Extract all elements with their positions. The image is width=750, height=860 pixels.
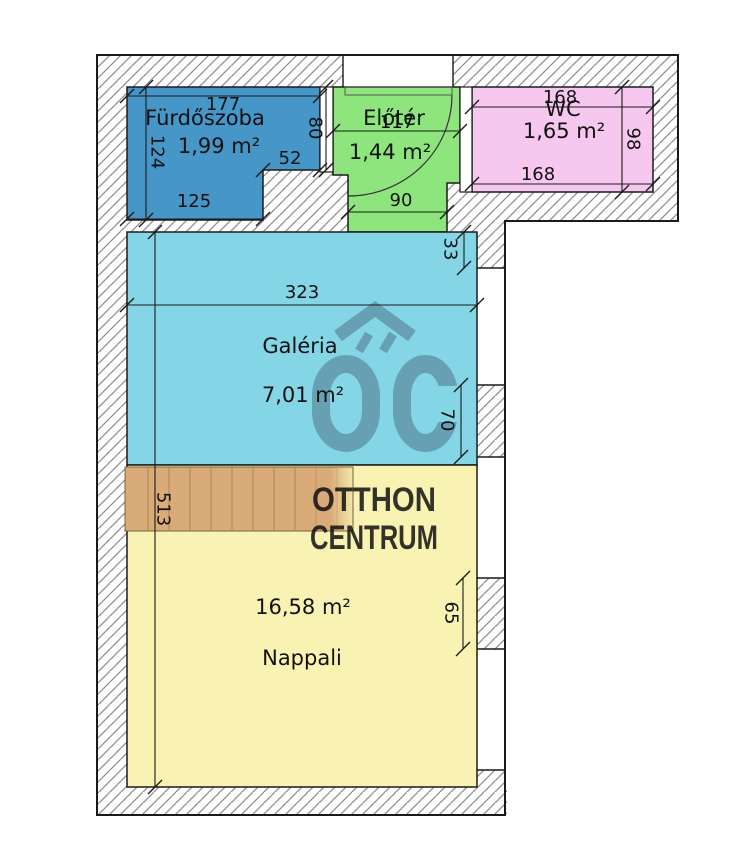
dim-65: 65: [441, 602, 462, 625]
watermark-line2: CENTRUM: [310, 519, 438, 557]
wall-left: [97, 87, 127, 815]
dim-90: 90: [390, 190, 413, 211]
wall-corner-bottom-right: [477, 770, 505, 815]
dim-513: 513: [153, 492, 174, 526]
label-eloter: Előtér: [363, 106, 425, 130]
dim-124: 124: [147, 135, 168, 169]
wall-pier-33: [477, 221, 505, 268]
floorplan-svg: ŐC: [0, 0, 750, 860]
dim-98: 98: [623, 128, 644, 151]
watermark-line1: OTTHON: [312, 481, 436, 519]
wall-top-left: [97, 55, 343, 87]
floorplan-page: ŐC: [0, 0, 750, 860]
label-galeria: Galéria: [262, 334, 337, 358]
dim-70: 70: [437, 409, 458, 432]
area-galeria: 7,01 m²: [262, 383, 344, 407]
wall-pier-65: [477, 578, 505, 649]
wall-below-wc: [460, 192, 678, 221]
wall-top-right: [453, 55, 678, 87]
area-eloter: 1,44 m²: [349, 140, 431, 164]
dim-52: 52: [279, 148, 302, 169]
dim-33: 33: [440, 238, 461, 261]
area-nappali: 16,58 m²: [255, 595, 351, 619]
wc-door-opening: [460, 87, 472, 192]
wall-pier-70: [477, 385, 505, 457]
dim-168-bottom: 168: [521, 164, 555, 185]
area-furdoszoba: 1,99 m²: [178, 134, 260, 158]
window-edges: [477, 268, 505, 770]
wall-bottom: [97, 787, 507, 815]
dim-125: 125: [177, 191, 211, 212]
area-wc: 1,65 m²: [523, 119, 605, 143]
dim-80: 80: [305, 117, 326, 140]
label-nappali: Nappali: [262, 646, 342, 670]
label-wc: WC: [545, 97, 580, 121]
label-furdoszoba: Fürdőszoba: [145, 106, 265, 130]
dim-323: 323: [285, 282, 319, 303]
